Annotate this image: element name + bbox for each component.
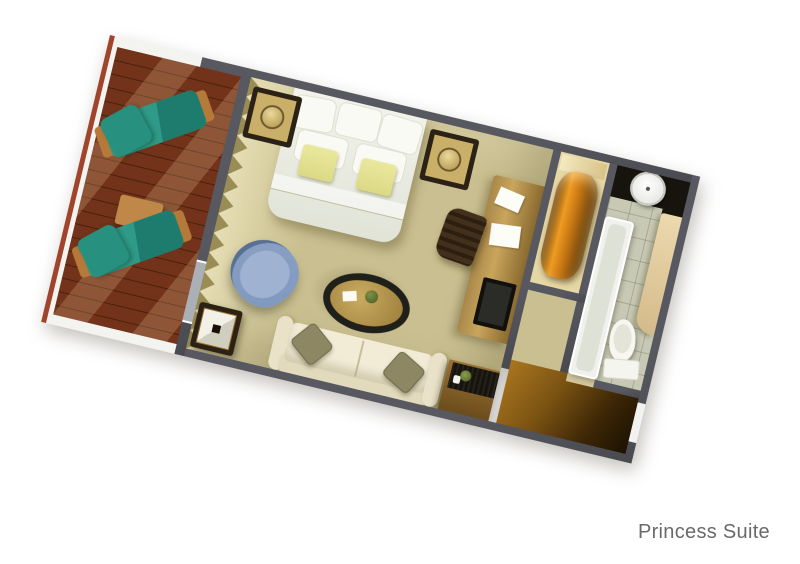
toilet-tank [603, 358, 640, 381]
desk-paper [489, 223, 522, 249]
suite-name-label: Princess Suite [638, 521, 770, 544]
book [342, 291, 356, 302]
table-plant [364, 289, 380, 305]
floor-plan [41, 35, 700, 464]
toilet [600, 316, 643, 383]
floor-plan-page: Princess Suite [0, 0, 800, 564]
toilet-bowl [608, 318, 637, 362]
